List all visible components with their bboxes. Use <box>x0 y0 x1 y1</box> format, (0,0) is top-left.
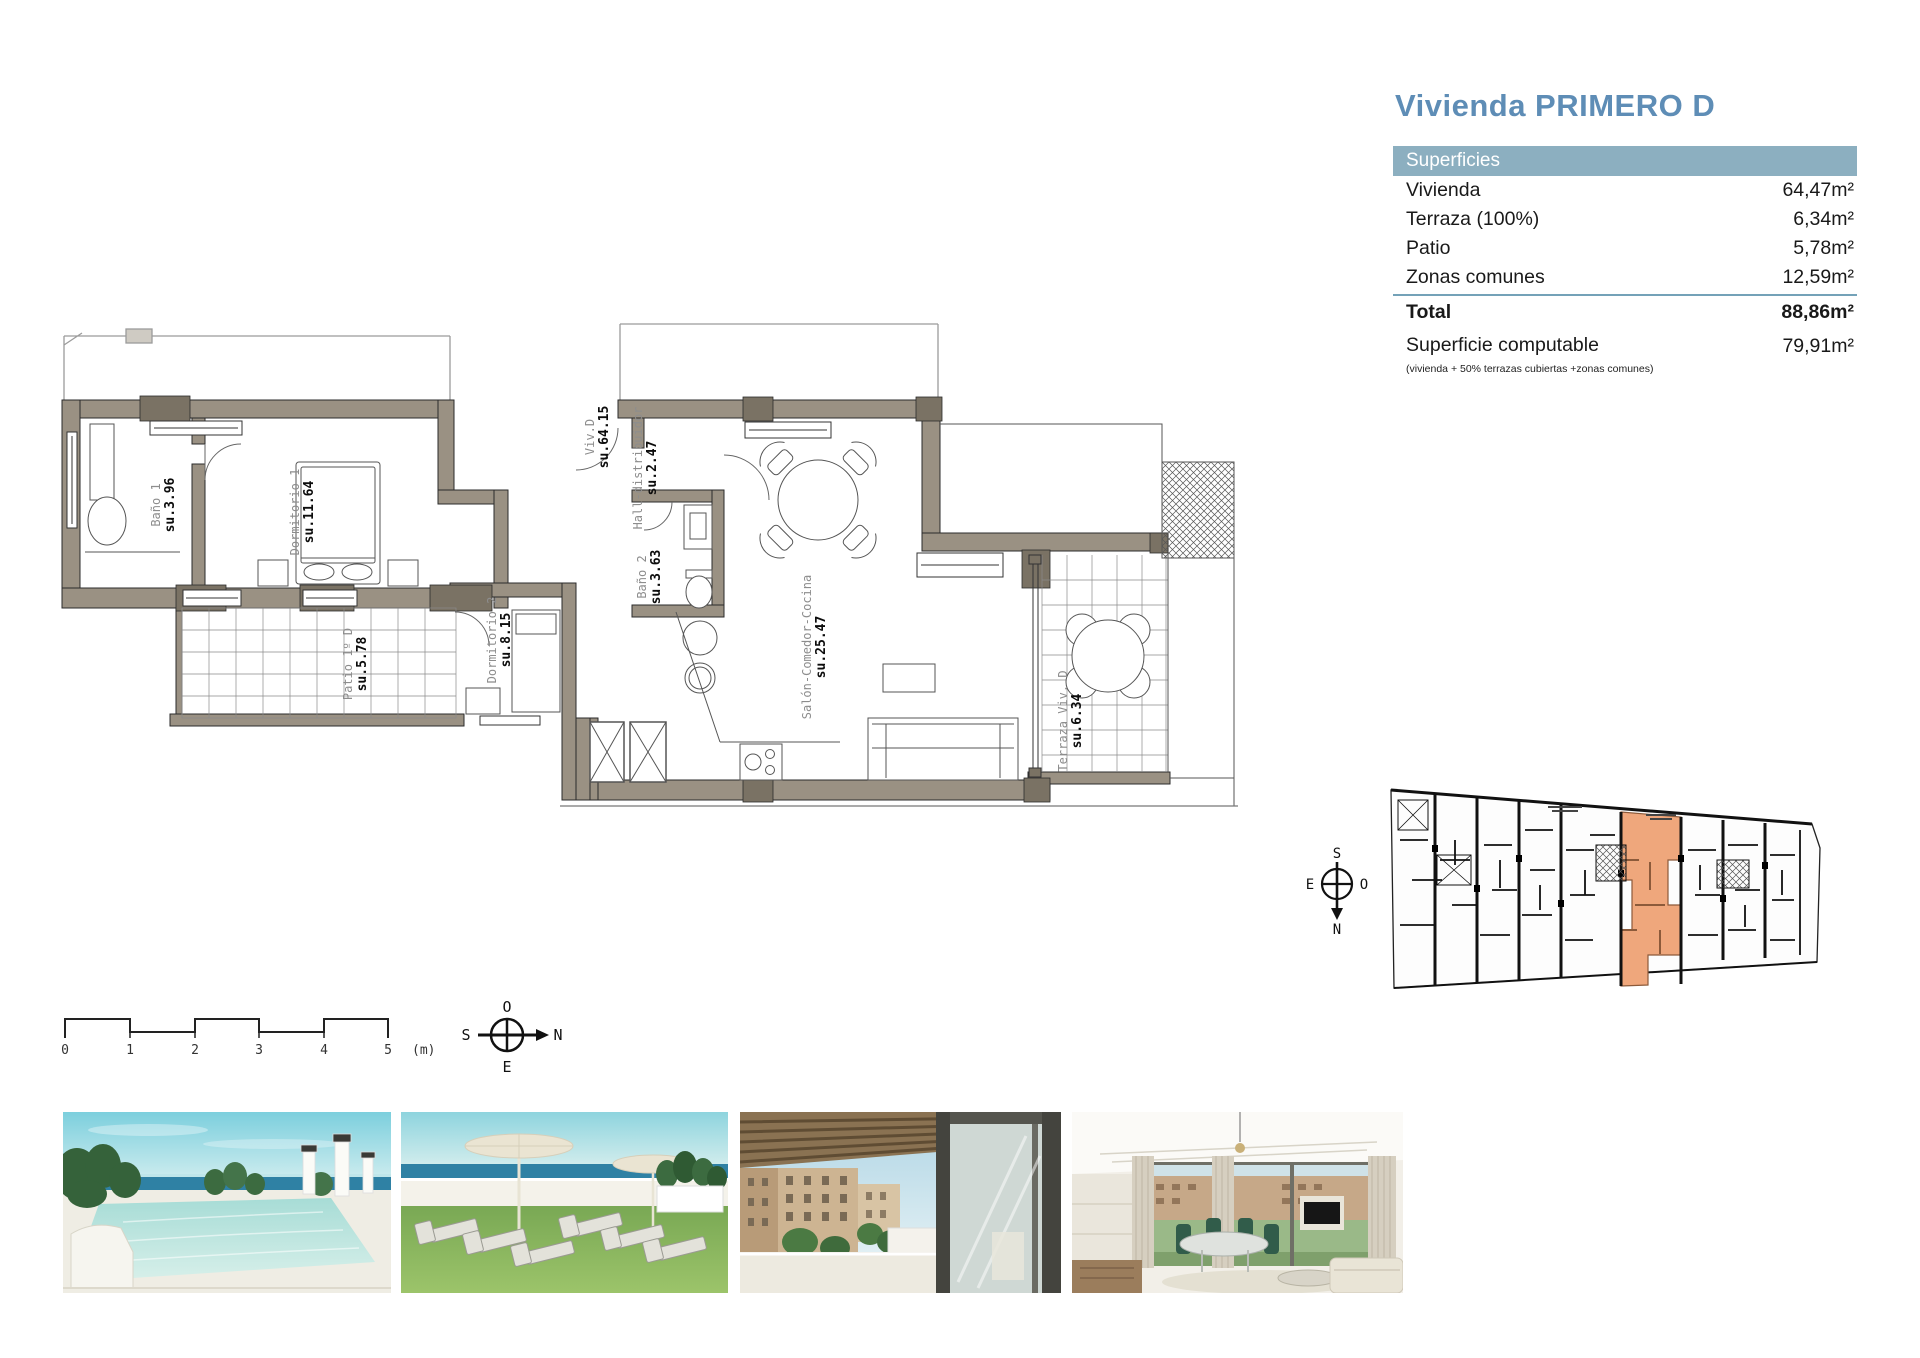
photo-balcony <box>740 1112 1061 1293</box>
computable-label: Superficie computable <box>1406 334 1599 356</box>
photo-living-room <box>1072 1112 1403 1293</box>
compass-main-right: N <box>553 1026 562 1044</box>
row-label: Terraza (100%) <box>1406 208 1539 231</box>
scale-tick-4: 4 <box>320 1043 328 1058</box>
row-label: Patio <box>1406 237 1450 260</box>
table-row: Zonas comunes 12,59m² <box>1393 263 1857 292</box>
surfaces-table: Superficies Vivienda 64,47m² Terraza (10… <box>1393 146 1857 378</box>
scale-unit: (m) <box>412 1043 435 1058</box>
key-plan <box>1391 790 1820 988</box>
row-label: Superficie computable (vivienda + 50% te… <box>1406 335 1653 378</box>
table-row: Vivienda 64,47m² <box>1393 176 1857 205</box>
photo-solarium <box>401 1112 728 1293</box>
row-label: Zonas comunes <box>1406 266 1545 289</box>
row-value: 6,34m² <box>1793 208 1854 231</box>
computable-note: (vivienda + 50% terrazas cubiertas +zona… <box>1406 363 1653 375</box>
scale-tick-5: 5 <box>384 1043 392 1058</box>
compass-key: S O N E <box>1306 846 1368 938</box>
row-value: 5,78m² <box>1793 237 1854 260</box>
row-value: 88,86m² <box>1781 301 1854 324</box>
compass-key-left: E <box>1306 877 1314 893</box>
row-value: 64,47m² <box>1782 179 1854 202</box>
table-row: Patio 5,78m² <box>1393 234 1857 263</box>
row-value: 12,59m² <box>1782 266 1854 289</box>
roof-outline <box>64 324 938 400</box>
compass-key-right: O <box>1360 877 1368 893</box>
compass-key-top: S <box>1333 846 1341 862</box>
row-label: Total <box>1406 301 1451 324</box>
patio-grid <box>182 608 456 718</box>
brochure-page: 0 1 2 3 4 5 (m) O N E S <box>0 0 1920 1358</box>
surfaces-header: Superficies <box>1393 146 1857 176</box>
compass-main-left: S <box>461 1026 470 1044</box>
scale-tick-0: 0 <box>61 1043 69 1058</box>
scale-bar: 0 1 2 3 4 5 (m) <box>61 1019 435 1058</box>
page-title: Vivienda PRIMERO D <box>1395 88 1865 124</box>
photo-rooftop-pool <box>63 1112 391 1293</box>
scale-tick-1: 1 <box>126 1043 134 1058</box>
scale-tick-2: 2 <box>191 1043 199 1058</box>
row-value: 79,91m² <box>1782 335 1854 378</box>
compass-main: O N E S <box>461 998 562 1076</box>
table-row: Terraza (100%) 6,34m² <box>1393 205 1857 234</box>
table-row-total: Total 88,86m² <box>1393 294 1857 329</box>
scale-tick-3: 3 <box>255 1043 263 1058</box>
table-row-computable: Superficie computable (vivienda + 50% te… <box>1393 329 1857 378</box>
compass-key-bottom: N <box>1333 922 1341 938</box>
compass-main-top: O <box>502 998 511 1016</box>
row-label: Vivienda <box>1406 179 1480 202</box>
compass-main-bottom: E <box>502 1058 511 1076</box>
